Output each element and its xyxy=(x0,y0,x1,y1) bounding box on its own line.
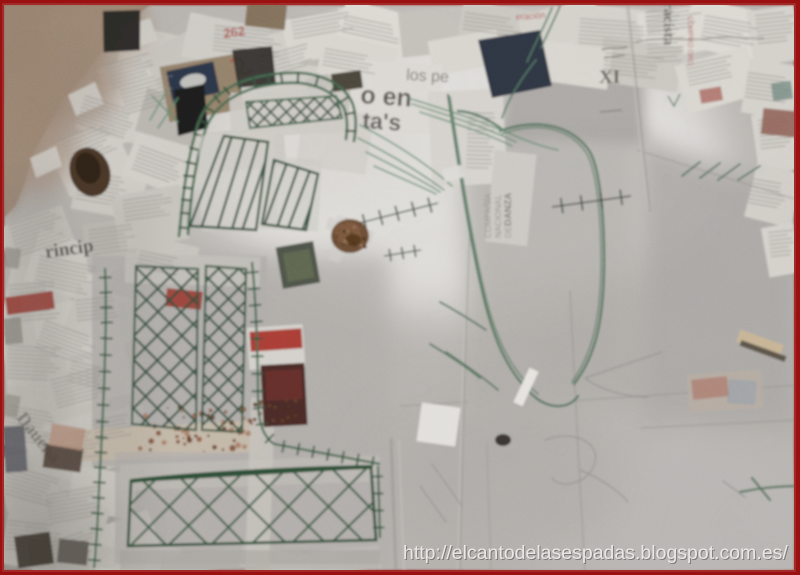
svg-text:http://elcantodelasespadas.blo: http://elcantodelasespadas.blogspot.com.… xyxy=(403,542,788,564)
